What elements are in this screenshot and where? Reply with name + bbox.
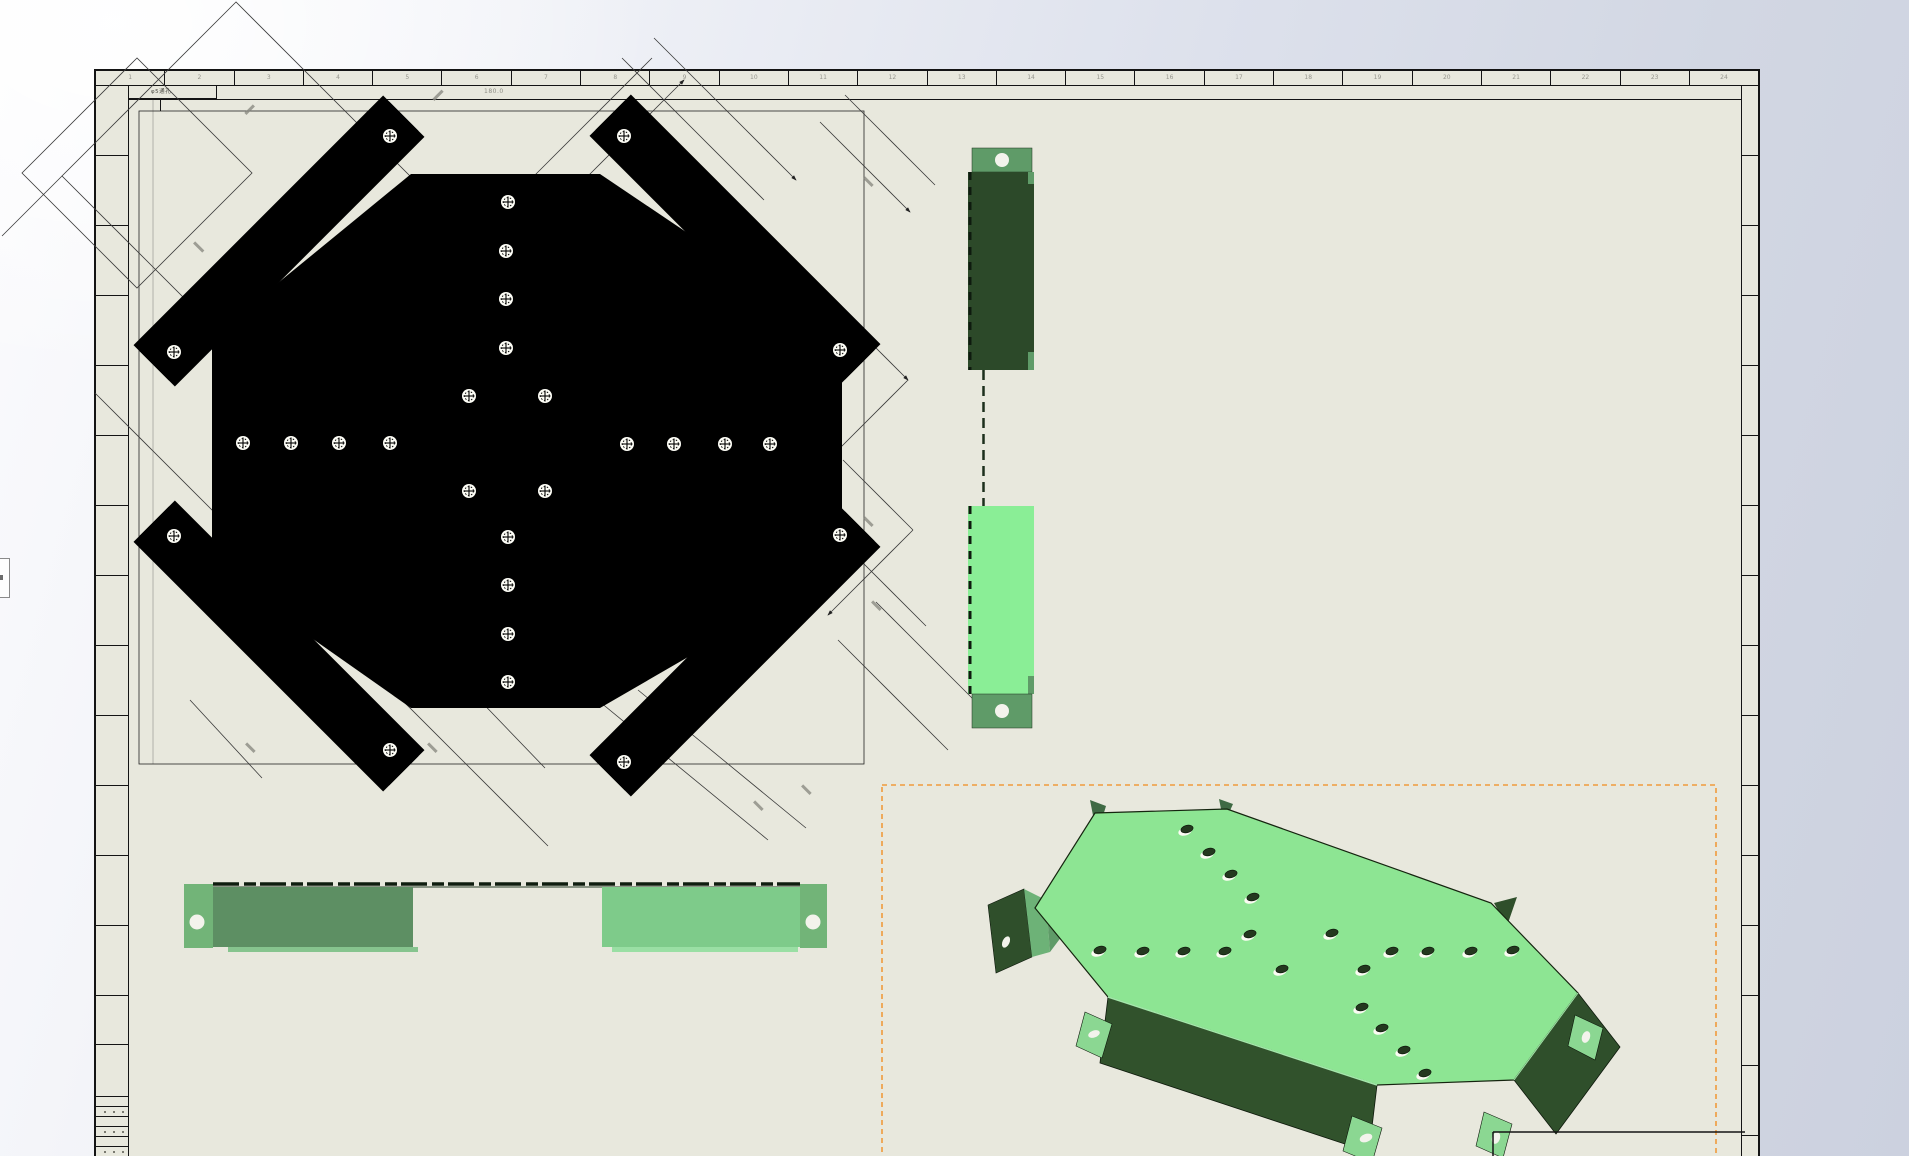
fastener-hole-symbol	[538, 389, 552, 403]
fastener-hole-symbol	[617, 129, 631, 143]
front-tab-hole	[190, 915, 205, 930]
drawing-view-isometric[interactable]	[988, 799, 1620, 1156]
fastener-hole-symbol	[763, 437, 777, 451]
fastener-hole-symbol	[501, 578, 515, 592]
drawing-view-side[interactable]	[968, 148, 1034, 728]
fastener-hole-symbol	[383, 743, 397, 757]
fastener-hole-symbol	[620, 437, 634, 451]
fastener-hole-symbol	[167, 529, 181, 543]
front-panel-sliver	[228, 947, 418, 952]
fastener-hole-symbol	[236, 436, 250, 450]
fastener-hole-symbol	[499, 244, 513, 258]
drawing-content	[0, 0, 1909, 1156]
side-sliver	[1028, 676, 1034, 694]
fastener-hole-symbol	[462, 389, 476, 403]
fastener-hole-symbol	[833, 343, 847, 357]
drawing-view-top[interactable]	[134, 95, 881, 797]
side-tab-hole	[995, 704, 1009, 718]
fastener-hole-symbol	[167, 345, 181, 359]
fastener-hole-symbol	[332, 436, 346, 450]
fastener-hole-symbol	[501, 627, 515, 641]
front-panel-right	[602, 887, 800, 947]
construction-diamond	[22, 58, 252, 288]
fastener-hole-symbol	[617, 755, 631, 769]
front-panel-left	[213, 887, 413, 947]
fastener-hole-symbol	[667, 437, 681, 451]
fastener-hole-symbol	[383, 436, 397, 450]
fastener-hole-symbol	[833, 528, 847, 542]
title-block-edge	[1493, 1132, 1745, 1156]
side-sliver	[1028, 172, 1034, 184]
fastener-hole-symbol	[383, 129, 397, 143]
iso-flange-left	[988, 889, 1032, 973]
fastener-hole-symbol	[501, 195, 515, 209]
cad-application-viewport[interactable]: { "sheet": { "zone_numbers": ["1","2","3…	[0, 0, 1909, 1156]
side-light-panel	[968, 506, 1034, 694]
fastener-hole-symbol	[538, 484, 552, 498]
fastener-hole-symbol	[718, 437, 732, 451]
fastener-hole-symbol	[501, 675, 515, 689]
front-panel-sliver	[612, 947, 798, 952]
fastener-hole-symbol	[462, 484, 476, 498]
drawing-view-front[interactable]	[184, 884, 827, 952]
front-tab-hole	[806, 915, 821, 930]
fastener-hole-symbol	[284, 436, 298, 450]
fastener-hole-symbol	[499, 341, 513, 355]
fastener-hole-symbol	[501, 530, 515, 544]
side-tab-hole	[995, 153, 1009, 167]
side-sliver	[1028, 352, 1034, 370]
fastener-hole-symbol	[499, 292, 513, 306]
side-dark-panel	[968, 172, 1034, 370]
